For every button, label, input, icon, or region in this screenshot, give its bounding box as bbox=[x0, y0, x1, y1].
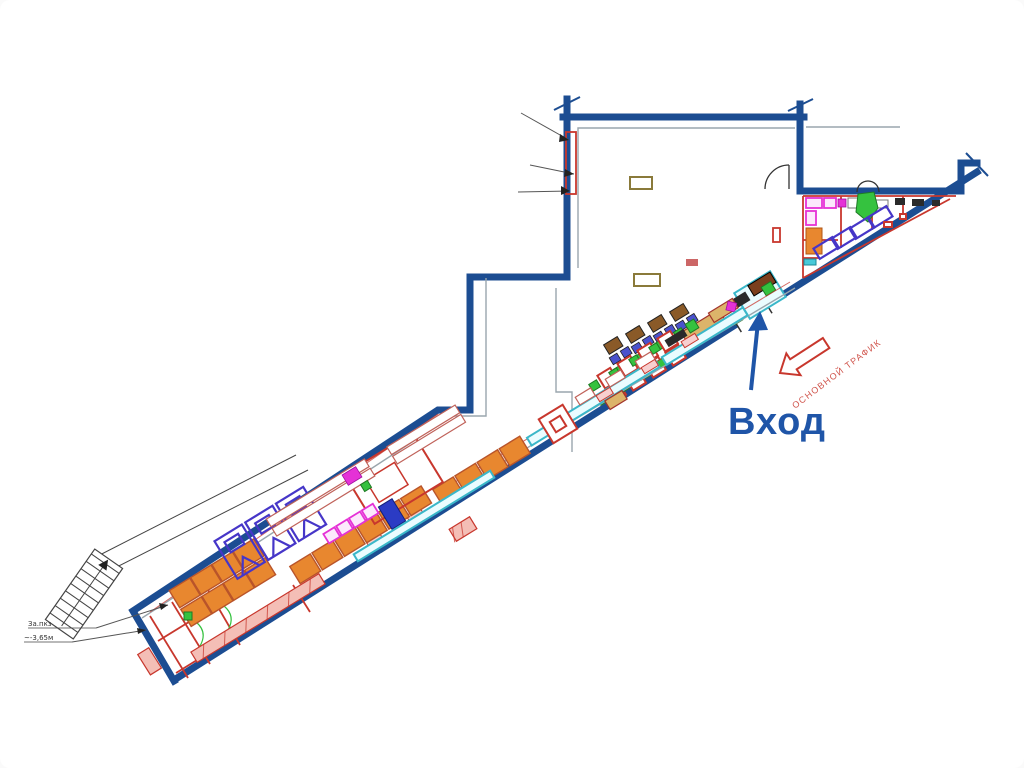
ceiling-vent bbox=[630, 177, 652, 189]
ramp-rail bbox=[86, 455, 296, 562]
floor-plan-page: Вход ОСНОВНОЙ ТРАФИК За.пкз ~-3,65м bbox=[0, 0, 1024, 768]
kitchen-counter bbox=[806, 211, 816, 225]
door-swing-arc bbox=[765, 165, 789, 189]
traffic-label: ОСНОВНОЙ ТРАФИК bbox=[790, 336, 883, 410]
kitchen-counter-cyan bbox=[804, 259, 816, 265]
stair-note-2: ~-3,65м bbox=[24, 634, 53, 642]
wall-marker bbox=[686, 259, 698, 266]
prep-table bbox=[831, 227, 856, 249]
floor-plan-drawing: Вход ОСНОВНОЙ ТРАФИК За.пкз ~-3,65м bbox=[0, 0, 1024, 768]
wall-right-step bbox=[800, 104, 977, 191]
staircase bbox=[45, 549, 122, 639]
lower-wing bbox=[138, 405, 530, 678]
appliance bbox=[912, 199, 924, 206]
entrance-label: Вход bbox=[728, 401, 826, 443]
kitchen-counter bbox=[806, 198, 822, 208]
entrance-arrow bbox=[751, 322, 758, 390]
kitchen-counter bbox=[824, 198, 836, 208]
stair-note-1: За.пкз bbox=[28, 620, 52, 628]
small-fixture bbox=[900, 214, 906, 219]
green-fixture bbox=[184, 612, 192, 620]
appliance bbox=[932, 200, 940, 206]
purple-fixture bbox=[726, 301, 737, 312]
exterior-unit bbox=[447, 517, 476, 543]
kitchen-sink bbox=[838, 199, 846, 207]
wall-marker bbox=[773, 228, 780, 242]
hall-inner-outline bbox=[578, 128, 795, 268]
leader-arrowhead-icon bbox=[159, 603, 168, 610]
small-fixture bbox=[884, 222, 892, 227]
appliance bbox=[895, 198, 905, 205]
ceiling-vent bbox=[634, 274, 660, 286]
leader-line bbox=[72, 630, 146, 642]
